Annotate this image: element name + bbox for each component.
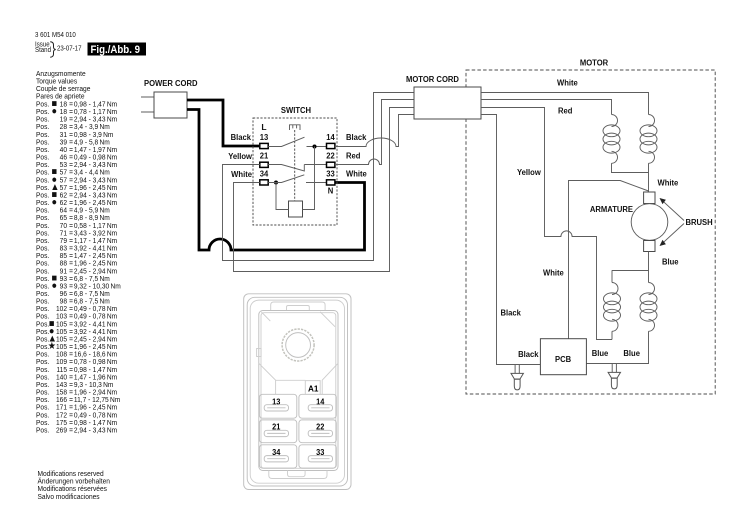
svg-text:14: 14 [326,133,335,142]
svg-text:Black: Black [346,133,367,142]
svg-text:White: White [658,178,679,187]
svg-text:Pos.70=0,58 - 1,17 Nm: Pos.70=0,58 - 1,17 Nm [36,223,117,230]
svg-text:Pos.64=4,9 - 5,9 Nm: Pos.64=4,9 - 5,9 Nm [36,207,110,214]
svg-text:PCB: PCB [555,355,571,364]
svg-text:Blue: Blue [592,349,609,358]
svg-text:Pos.39=4,9 - 5,8 Nm: Pos.39=4,9 - 5,8 Nm [36,139,110,146]
svg-text:33: 33 [326,169,335,178]
svg-text:Pos.98=6,8 - 7,5 Nm: Pos.98=6,8 - 7,5 Nm [36,298,110,305]
svg-text:SWITCH: SWITCH [281,106,311,115]
svg-text:White: White [557,78,578,87]
svg-text:Pos.102=0,49 - 0,78 Nm: Pos.102=0,49 - 0,78 Nm [36,306,117,313]
svg-text:Yellow: Yellow [228,152,252,161]
svg-text:Yellow: Yellow [517,168,541,177]
svg-text:13: 13 [260,133,269,142]
svg-text:Pares de apriete: Pares de apriete [36,93,85,100]
svg-text:Pos.140=1,47 - 1,96 Nm: Pos.140=1,47 - 1,96 Nm [36,374,117,381]
svg-text:3 601 M54 010: 3 601 M54 010 [35,32,76,40]
svg-text:White: White [231,170,252,179]
svg-text:Pos.91=2,45 - 2,94 Nm: Pos.91=2,45 - 2,94 Nm [36,268,117,275]
svg-text:White: White [543,268,564,277]
svg-text:Pos.158=1,96 - 2,94 Nm: Pos.158=1,96 - 2,94 Nm [36,389,117,396]
svg-text:Pos.269=2,94 - 3,43 Nm: Pos.269=2,94 - 3,43 Nm [36,427,117,434]
svg-text:Pos.115=0,98 - 1,47 Nm: Pos.115=0,98 - 1,47 Nm [36,367,117,374]
svg-text:N: N [328,186,334,195]
svg-text:Anzugsmomente: Anzugsmomente [36,71,86,78]
svg-text:Pos.40=1,47 - 1,97 Nm: Pos.40=1,47 - 1,97 Nm [36,147,117,154]
svg-text:Black: Black [518,350,539,359]
svg-text:POWER CORD: POWER CORD [144,79,198,88]
svg-text:Fig./Abb. 9: Fig./Abb. 9 [91,45,141,57]
svg-text:Pos.172=0,49 - 0,78 Nm: Pos.172=0,49 - 0,78 Nm [36,412,117,419]
svg-text:Pos.71=3,43 - 3,92 Nm: Pos.71=3,43 - 3,92 Nm [36,230,117,237]
svg-text:Pos.143=9,3 - 10,3 Nm: Pos.143=9,3 - 10,3 Nm [36,382,114,389]
svg-text:Couple de serrage: Couple de serrage [36,86,91,93]
svg-text:Pos.46=0,49 - 0,98 Nm: Pos.46=0,49 - 0,98 Nm [36,154,117,161]
svg-text:A1: A1 [308,384,319,393]
svg-text:Pos.28=3,4 - 3,9 Nm: Pos.28=3,4 - 3,9 Nm [36,124,110,131]
svg-text:Pos.31=0,98 - 3,9 Nm: Pos.31=0,98 - 3,9 Nm [36,132,114,139]
svg-text:Pos.166=11,7 - 12,75 Nm: Pos.166=11,7 - 12,75 Nm [36,397,121,404]
svg-text:Pos.85=1,47 - 2,45 Nm: Pos.85=1,47 - 2,45 Nm [36,253,117,260]
svg-text:Torque values: Torque values [36,78,78,85]
svg-text:Black: Black [231,133,252,142]
svg-text:MOTOR: MOTOR [580,58,608,67]
svg-text:Pos.53=2,94 - 3,43 Nm: Pos.53=2,94 - 3,43 Nm [36,162,117,169]
svg-text:Pos.88=1,96 - 2,45 Nm: Pos.88=1,96 - 2,45 Nm [36,260,117,267]
svg-text:White: White [346,169,367,178]
svg-text:34: 34 [260,169,269,178]
svg-text:Pos.109=0,78 - 0,98 Nm: Pos.109=0,78 - 0,98 Nm [36,359,117,366]
svg-text:Red: Red [558,106,572,115]
svg-text:Blue: Blue [662,257,679,266]
svg-text:22: 22 [326,151,335,160]
svg-text:Red: Red [346,151,360,160]
svg-text:Blue: Blue [623,349,640,358]
svg-text:Pos.175=0,98 - 1,47 Nm: Pos.175=0,98 - 1,47 Nm [36,420,117,427]
svg-text:Salvo modificaciones: Salvo modificaciones [38,494,101,501]
svg-text:BRUSH: BRUSH [686,218,713,227]
svg-text:Modifications reserved: Modifications reserved [38,471,104,478]
svg-text:Pos.19=2,94 - 3,43 Nm: Pos.19=2,94 - 3,43 Nm [36,116,117,123]
svg-text:MOTOR CORD: MOTOR CORD [406,75,459,84]
svg-text:Modifications réservées: Modifications réservées [38,486,108,493]
svg-text:Black: Black [501,308,522,317]
svg-text:23-07-17: 23-07-17 [57,45,82,53]
svg-text:Pos.108=16,6 - 18,6 Nm: Pos.108=16,6 - 18,6 Nm [36,351,117,358]
svg-text:L: L [261,122,266,132]
svg-text:Stand: Stand [35,47,51,55]
svg-text:Pos.79=1,17 - 1,47 Nm: Pos.79=1,17 - 1,47 Nm [36,238,117,245]
svg-text:Pos.65=8,8 - 8,9 Nm: Pos.65=8,8 - 8,9 Nm [36,215,110,222]
svg-text:Pos.96=6,8 - 7,5 Nm: Pos.96=6,8 - 7,5 Nm [36,291,110,298]
svg-text:ARMATURE: ARMATURE [590,205,634,214]
svg-text:Änderungen vorbehalten: Änderungen vorbehalten [38,477,111,485]
svg-text:Pos.83=3,92 - 4,41 Nm: Pos.83=3,92 - 4,41 Nm [36,245,117,252]
svg-text:21: 21 [260,151,269,160]
svg-text:Pos.171=1,96 - 2,45 Nm: Pos.171=1,96 - 2,45 Nm [36,404,117,411]
